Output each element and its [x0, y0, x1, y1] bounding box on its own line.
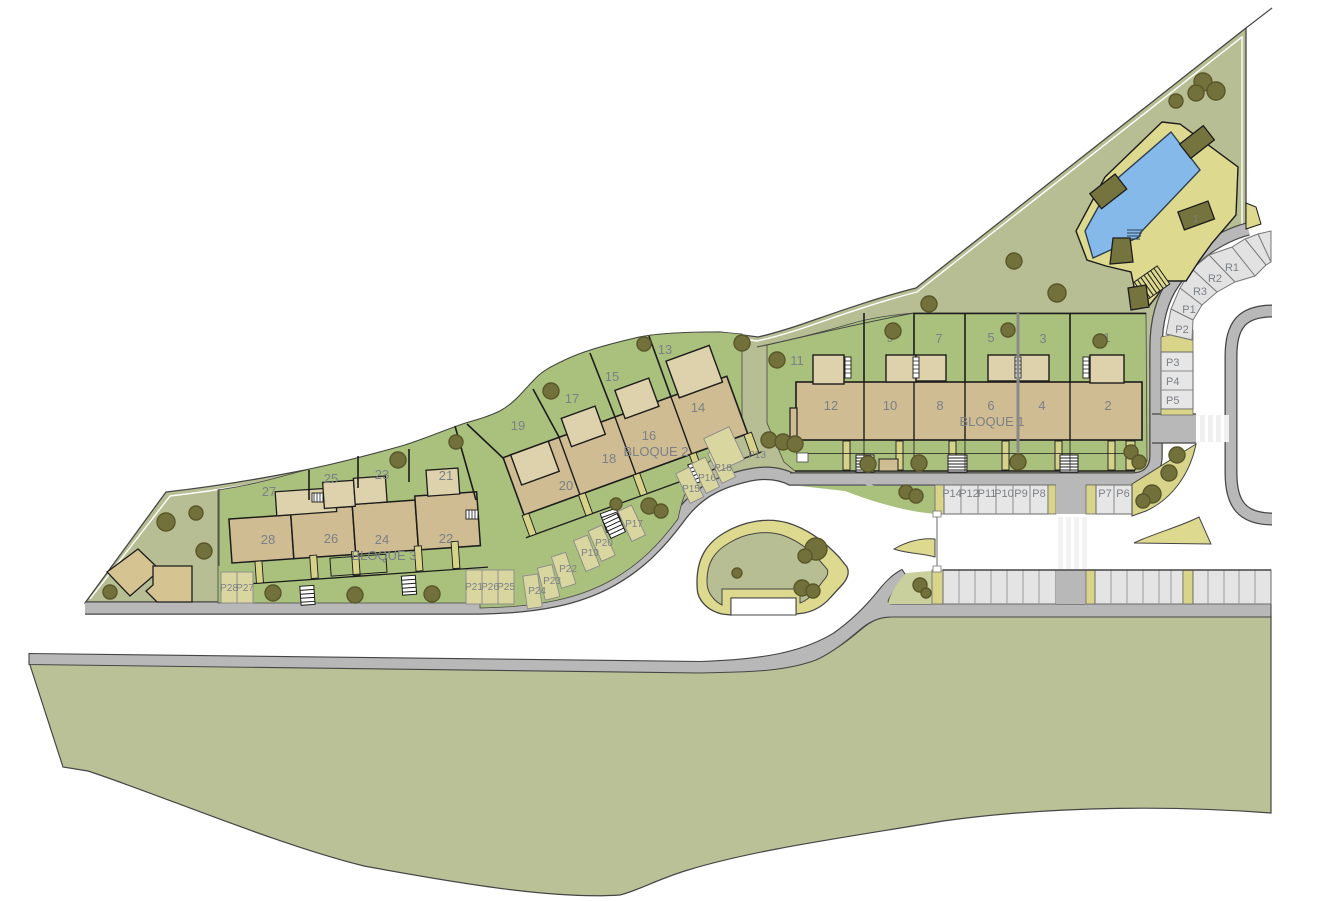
svg-text:10: 10: [883, 398, 897, 413]
svg-text:P3: P3: [1166, 357, 1179, 369]
svg-text:P10: P10: [994, 488, 1014, 500]
svg-text:P13: P13: [748, 450, 766, 461]
svg-text:P15: P15: [682, 484, 700, 495]
svg-text:2: 2: [1104, 398, 1111, 413]
svg-text:19: 19: [511, 418, 525, 433]
svg-text:17: 17: [565, 391, 579, 406]
svg-text:R3: R3: [1193, 286, 1207, 298]
svg-text:11: 11: [790, 353, 804, 368]
svg-text:P2: P2: [1175, 324, 1188, 336]
svg-text:P1: P1: [1182, 304, 1195, 316]
svg-text:BLOQUE 1: BLOQUE 1: [959, 414, 1024, 429]
svg-text:P6: P6: [1116, 488, 1129, 500]
svg-text:20: 20: [559, 478, 573, 493]
svg-text:BLOQUE 2: BLOQUE 2: [623, 444, 688, 459]
svg-text:R2: R2: [1208, 273, 1222, 285]
svg-text:P17: P17: [625, 519, 643, 530]
svg-text:13: 13: [658, 342, 672, 357]
svg-text:24: 24: [375, 532, 389, 547]
svg-text:3: 3: [1039, 331, 1046, 346]
svg-text:23: 23: [375, 467, 389, 482]
svg-text:26: 26: [324, 531, 338, 546]
svg-text:22: 22: [439, 531, 453, 546]
svg-text:P25: P25: [497, 582, 515, 593]
svg-text:P20: P20: [595, 538, 613, 549]
svg-text:P23: P23: [543, 576, 561, 587]
svg-text:P24: P24: [528, 586, 546, 597]
svg-text:P19: P19: [581, 548, 599, 559]
svg-text:P9: P9: [1014, 488, 1027, 500]
svg-text:P8: P8: [1032, 488, 1045, 500]
svg-text:1: 1: [1193, 214, 1199, 225]
svg-text:15: 15: [605, 369, 619, 384]
svg-text:BLOQUE 3: BLOQUE 3: [351, 548, 416, 563]
svg-text:P27: P27: [236, 583, 254, 594]
svg-text:P16: P16: [698, 473, 716, 484]
svg-text:8: 8: [936, 398, 943, 413]
svg-text:25: 25: [324, 471, 338, 486]
svg-text:P12: P12: [959, 488, 979, 500]
svg-text:12: 12: [824, 398, 838, 413]
svg-text:R1: R1: [1225, 262, 1239, 274]
svg-text:P22: P22: [559, 564, 577, 575]
svg-text:P7: P7: [1098, 488, 1111, 500]
svg-text:28: 28: [261, 532, 275, 547]
svg-text:P4: P4: [1166, 376, 1179, 388]
svg-text:18: 18: [602, 451, 616, 466]
svg-text:6: 6: [987, 398, 994, 413]
svg-text:16: 16: [642, 428, 656, 443]
svg-text:27: 27: [262, 484, 276, 499]
svg-text:P18: P18: [714, 463, 732, 474]
svg-text:5: 5: [987, 330, 994, 345]
svg-text:4: 4: [1038, 398, 1045, 413]
svg-text:P5: P5: [1166, 395, 1179, 407]
svg-text:7: 7: [935, 331, 942, 346]
svg-text:14: 14: [691, 400, 705, 415]
svg-text:21: 21: [439, 468, 453, 483]
